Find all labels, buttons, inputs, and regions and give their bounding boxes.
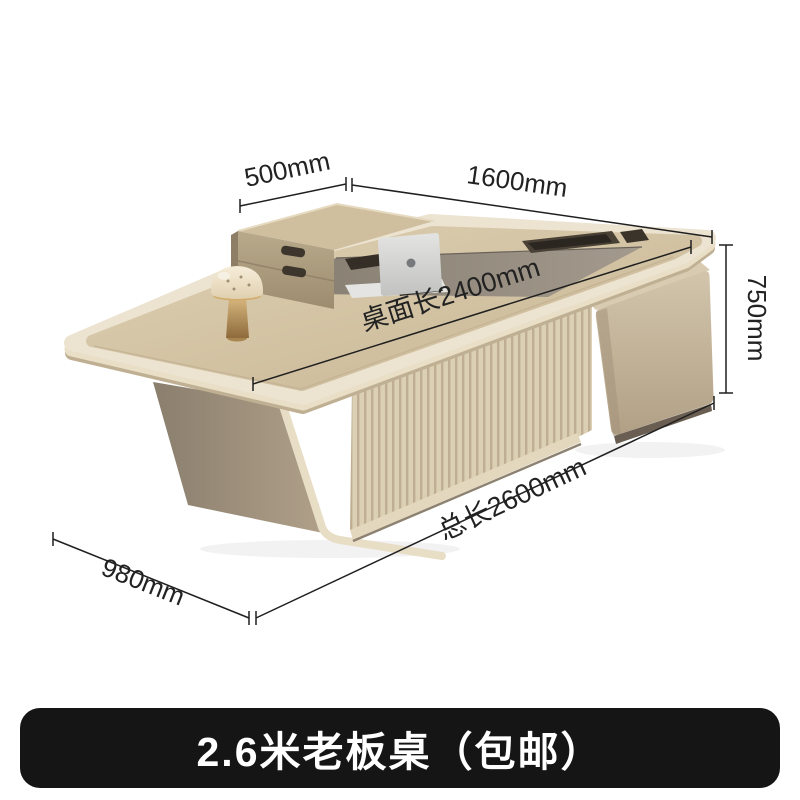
apple-logo-icon: [407, 259, 416, 268]
label-main-top-width: 1600mm: [465, 159, 569, 203]
desk-illustration: 500mm 1600mm 750mm 桌面长2400mm 总长2600mm 98…: [0, 0, 800, 800]
title-banner: 2.6米老板桌（包邮）: [20, 708, 780, 788]
label-side-depth: 980mm: [97, 552, 189, 612]
product-title: 2.6米老板桌（包邮）: [197, 718, 604, 778]
dim-line-750: [719, 245, 733, 393]
product-image: 500mm 1600mm 750mm 桌面长2400mm 总长2600mm 98…: [0, 0, 800, 800]
label-height: 750mm: [742, 275, 772, 362]
label-return-depth: 500mm: [242, 146, 333, 193]
lamp-stem: [226, 297, 249, 338]
